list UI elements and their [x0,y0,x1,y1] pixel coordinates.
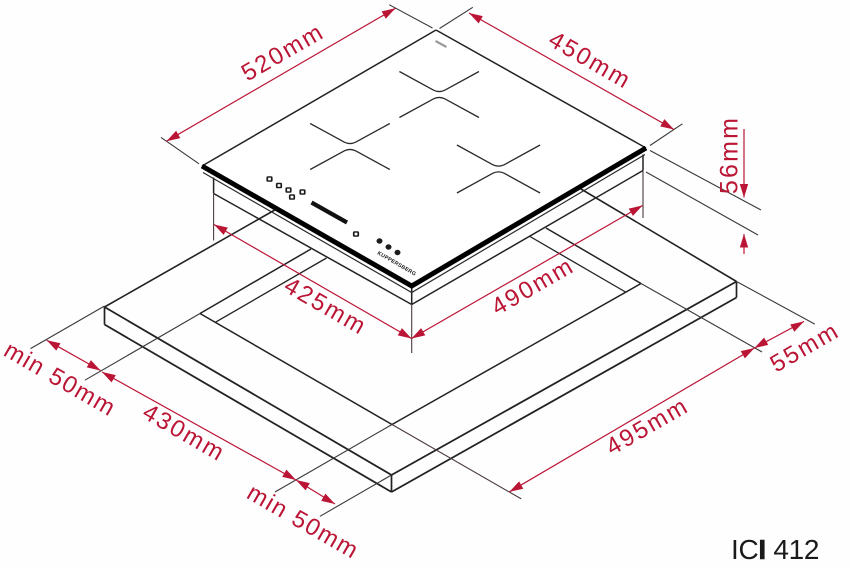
svg-text:56mm: 56mm [716,116,744,194]
svg-text:ICI 412: ICI 412 [731,534,819,565]
